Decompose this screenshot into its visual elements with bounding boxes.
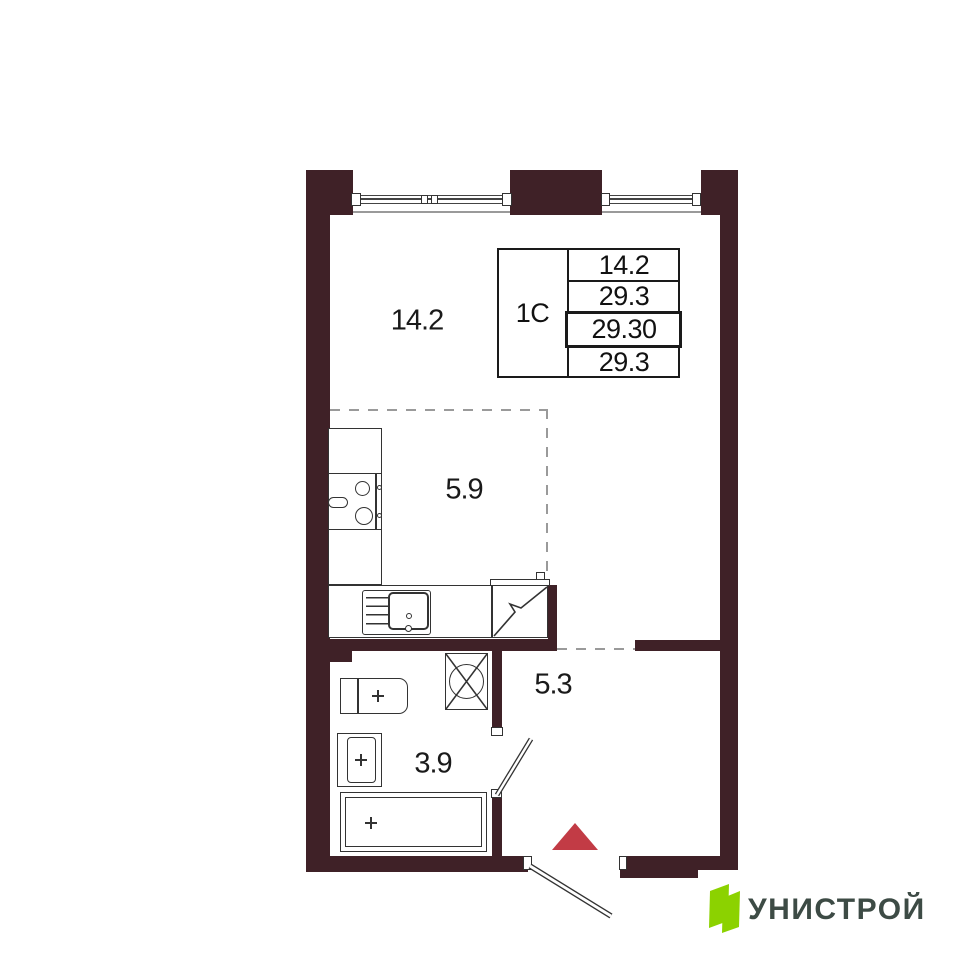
sink-drainer-lines: [366, 597, 388, 625]
stove-burner-large: [355, 507, 373, 525]
unit-table-row-4: 29.3: [569, 348, 679, 376]
window-left-mullion-b: [431, 195, 438, 204]
washing-machine-divider: [357, 679, 359, 713]
wall-fridge-stub: [548, 585, 557, 641]
entrance-door-jamb-left: [523, 856, 532, 870]
wall-left: [306, 215, 330, 872]
bathroom-area-label: 3.9: [414, 748, 451, 781]
washing-machine-plus: [372, 690, 384, 702]
developer-logo-text: УНИСТРОЙ: [748, 893, 926, 927]
wall-bottom-right: [620, 856, 738, 870]
wall-bathroom-hall-lower: [492, 797, 502, 856]
window-left-cap-b: [502, 193, 512, 206]
wall-bathroom-hall-upper: [492, 651, 502, 730]
window-left-cap-a: [351, 193, 361, 206]
floor-plan-canvas: 14.2 5.9 5.3 3.9 1С 14.2 29.3 29.30 29.3…: [0, 0, 960, 960]
entrance-marker: [552, 823, 598, 850]
kitchen-zone-boundary-right: [546, 409, 548, 581]
window-left-mullion-a: [421, 195, 428, 204]
stove-panel-line: [375, 474, 377, 529]
unit-table-row-1: 14.2: [569, 250, 679, 280]
bathroom-door-jamb-top: [491, 727, 503, 736]
stove-knob-bottom: [377, 513, 382, 518]
kitchen-zone-area-label: 5.9: [445, 474, 482, 507]
window-right-cap-b: [692, 193, 701, 206]
wall-right: [720, 215, 738, 870]
entrance-door-leaf: [530, 866, 611, 916]
sink-drain-dot: [405, 625, 412, 632]
wall-top-left-block: [306, 170, 353, 215]
bathtub-plus: [365, 817, 377, 829]
stove-knob-top: [377, 485, 382, 490]
oven-handle: [328, 497, 348, 508]
hallway-zone-boundary: [557, 648, 635, 650]
window-right-frame: [603, 195, 700, 204]
entrance-door-leaf-outline: [530, 866, 611, 916]
bathroom-door-leaf: [497, 739, 531, 795]
refrigerator-handle: [536, 572, 545, 580]
unit-table-row-2: 29.3: [569, 282, 679, 311]
wall-living-bathroom: [306, 639, 557, 651]
logo-mark-left: [709, 884, 729, 928]
refrigerator-top-bar: [490, 579, 550, 586]
window-right-sill: [595, 211, 710, 213]
hallway-area-label: 5.3: [534, 669, 571, 702]
living-room-area-label: 14.2: [391, 305, 443, 338]
wall-top-pier: [510, 170, 602, 215]
entrance-door-jamb-right: [619, 856, 627, 870]
wall-bathroom-corner-step: [330, 651, 352, 662]
wall-bottom-left: [306, 856, 528, 872]
wall-top-right-block: [701, 170, 738, 215]
bathroom-door-leaf-outline: [497, 739, 531, 795]
logo-mark-right: [722, 891, 740, 933]
wall-hallway-living: [635, 640, 720, 651]
stove-burner-small: [355, 481, 370, 496]
kitchen-zone-boundary-top: [330, 409, 548, 411]
unit-type-cell: 1С: [499, 250, 566, 376]
sink-faucet-dot: [406, 613, 412, 619]
wall-bottom-right-lip: [620, 870, 698, 878]
window-left-sill: [344, 211, 518, 213]
window-right-cap-a: [601, 193, 610, 206]
refrigerator: [492, 585, 548, 638]
bathroom-door-jamb-bottom: [491, 789, 502, 798]
ventilation-shaft-circle: [449, 664, 484, 699]
toilet-plus: [355, 754, 367, 766]
unit-table-row-3: 29.30: [569, 314, 679, 345]
